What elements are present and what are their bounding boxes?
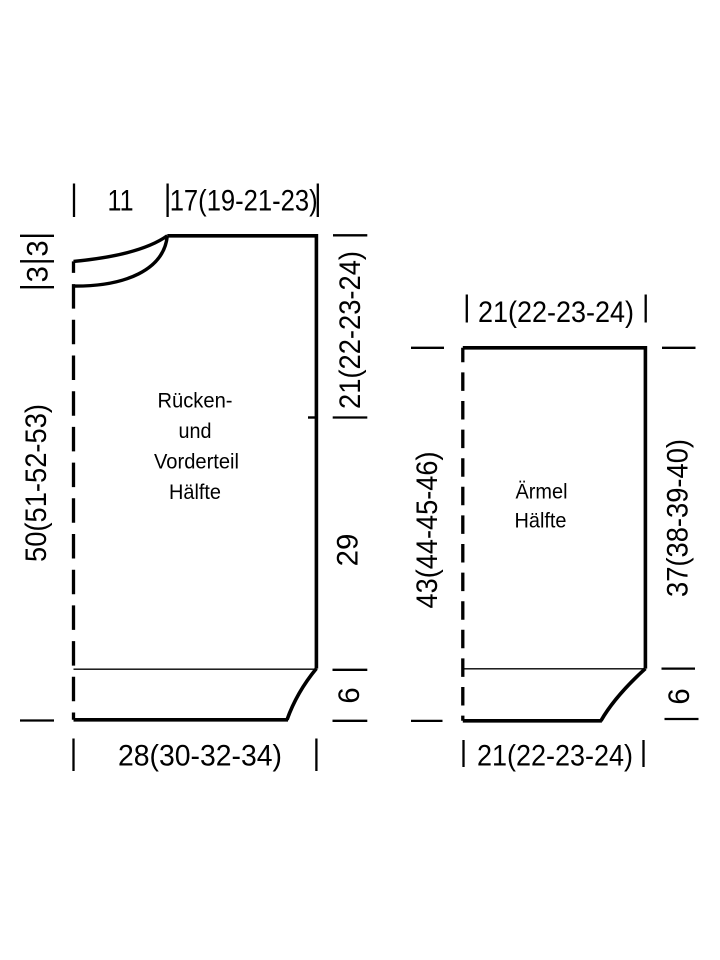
svg-text:und: und (179, 418, 212, 443)
svg-text:Vorderteil: Vorderteil (154, 449, 239, 474)
svg-text:3: 3 (22, 266, 55, 282)
svg-text:11: 11 (108, 184, 134, 217)
svg-text:43(44-45-46): 43(44-45-46) (411, 452, 444, 609)
svg-text:21(22-23-24): 21(22-23-24) (334, 251, 367, 409)
svg-text:21(22-23-24): 21(22-23-24) (477, 739, 633, 772)
svg-text:17(19-21-23): 17(19-21-23) (170, 184, 318, 217)
svg-text:3: 3 (22, 240, 55, 256)
svg-text:50(51-52-53): 50(51-52-53) (20, 404, 53, 562)
svg-text:21(22-23-24): 21(22-23-24) (478, 296, 634, 329)
svg-text:6: 6 (333, 687, 366, 703)
svg-text:Hälfte: Hälfte (515, 508, 567, 533)
svg-text:6: 6 (663, 688, 696, 704)
svg-text:Rücken-: Rücken- (158, 388, 233, 413)
svg-text:29: 29 (332, 534, 365, 567)
svg-text:28(30-32-34): 28(30-32-34) (118, 739, 282, 772)
svg-text:Ärmel: Ärmel (516, 479, 568, 504)
svg-text:37(38-39-40): 37(38-39-40) (662, 439, 695, 597)
svg-text:Hälfte: Hälfte (169, 479, 221, 504)
